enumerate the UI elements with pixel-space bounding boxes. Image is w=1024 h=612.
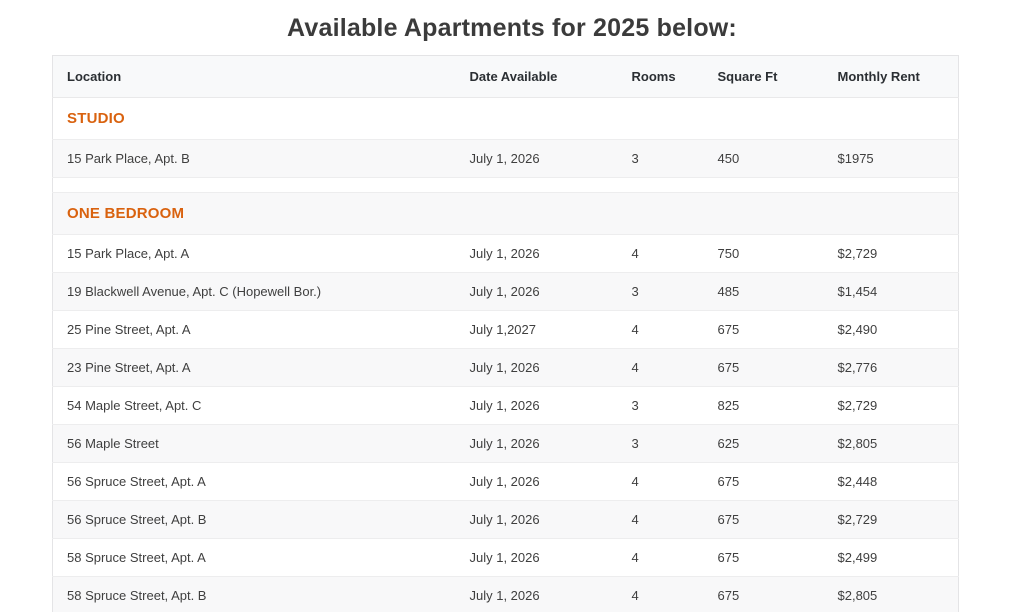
col-header-rooms: Rooms: [618, 56, 704, 98]
cell-square-ft: 485: [704, 273, 824, 311]
table-row: 58 Spruce Street, Apt. AJuly 1, 20264675…: [53, 539, 959, 577]
col-header-square-ft: Square Ft: [704, 56, 824, 98]
cell-monthly-rent: $2,729: [824, 501, 959, 539]
cell-rooms: 4: [618, 235, 704, 273]
cell-date-available: July 1, 2026: [456, 539, 618, 577]
cell-date-available: July 1, 2026: [456, 235, 618, 273]
cell-date-available: July 1, 2026: [456, 425, 618, 463]
cell-date-available: July 1, 2026: [456, 140, 618, 178]
cell-rooms: 4: [618, 501, 704, 539]
cell-date-available: July 1, 2026: [456, 577, 618, 612]
cell-location: 58 Spruce Street, Apt. B: [53, 577, 456, 612]
cell-date-available: July 1, 2026: [456, 273, 618, 311]
apartments-table-container: Location Date Available Rooms Square Ft …: [52, 55, 958, 612]
cell-rooms: 3: [618, 273, 704, 311]
cell-monthly-rent: $2,490: [824, 311, 959, 349]
section-title: ONE BEDROOM: [53, 193, 959, 235]
cell-date-available: July 1, 2026: [456, 463, 618, 501]
table-row: 56 Spruce Street, Apt. AJuly 1, 20264675…: [53, 463, 959, 501]
apartments-table-body: STUDIO15 Park Place, Apt. BJuly 1, 20263…: [53, 98, 959, 612]
section-header-row: ONE BEDROOM: [53, 193, 959, 235]
table-row: 23 Pine Street, Apt. AJuly 1, 20264675$2…: [53, 349, 959, 387]
spacer-cell: [53, 178, 959, 193]
cell-location: 23 Pine Street, Apt. A: [53, 349, 456, 387]
cell-date-available: July 1,2027: [456, 311, 618, 349]
cell-rooms: 4: [618, 349, 704, 387]
cell-square-ft: 825: [704, 387, 824, 425]
page-title: Available Apartments for 2025 below:: [0, 14, 1024, 43]
cell-monthly-rent: $2,499: [824, 539, 959, 577]
cell-monthly-rent: $1,454: [824, 273, 959, 311]
table-row: 58 Spruce Street, Apt. BJuly 1, 20264675…: [53, 577, 959, 612]
cell-square-ft: 625: [704, 425, 824, 463]
cell-monthly-rent: $2,805: [824, 577, 959, 612]
table-row: 15 Park Place, Apt. AJuly 1, 20264750$2,…: [53, 235, 959, 273]
cell-location: 56 Spruce Street, Apt. B: [53, 501, 456, 539]
cell-square-ft: 675: [704, 349, 824, 387]
cell-monthly-rent: $2,729: [824, 387, 959, 425]
cell-monthly-rent: $2,805: [824, 425, 959, 463]
cell-monthly-rent: $1975: [824, 140, 959, 178]
col-header-date-available: Date Available: [456, 56, 618, 98]
table-row: 19 Blackwell Avenue, Apt. C (Hopewell Bo…: [53, 273, 959, 311]
cell-square-ft: 675: [704, 311, 824, 349]
cell-location: 19 Blackwell Avenue, Apt. C (Hopewell Bo…: [53, 273, 456, 311]
table-row: 25 Pine Street, Apt. AJuly 1,20274675$2,…: [53, 311, 959, 349]
cell-square-ft: 675: [704, 577, 824, 612]
cell-location: 15 Park Place, Apt. B: [53, 140, 456, 178]
table-row: 56 Maple StreetJuly 1, 20263625$2,805: [53, 425, 959, 463]
cell-location: 56 Spruce Street, Apt. A: [53, 463, 456, 501]
cell-rooms: 3: [618, 425, 704, 463]
col-header-location: Location: [53, 56, 456, 98]
cell-location: 15 Park Place, Apt. A: [53, 235, 456, 273]
cell-square-ft: 750: [704, 235, 824, 273]
table-row: 15 Park Place, Apt. BJuly 1, 20263450$19…: [53, 140, 959, 178]
cell-date-available: July 1, 2026: [456, 387, 618, 425]
cell-rooms: 4: [618, 577, 704, 612]
col-header-monthly-rent: Monthly Rent: [824, 56, 959, 98]
table-header-row: Location Date Available Rooms Square Ft …: [53, 56, 959, 98]
cell-square-ft: 675: [704, 539, 824, 577]
cell-rooms: 4: [618, 539, 704, 577]
cell-monthly-rent: $2,729: [824, 235, 959, 273]
cell-rooms: 4: [618, 311, 704, 349]
cell-square-ft: 675: [704, 501, 824, 539]
cell-location: 58 Spruce Street, Apt. A: [53, 539, 456, 577]
cell-location: 54 Maple Street, Apt. C: [53, 387, 456, 425]
cell-square-ft: 450: [704, 140, 824, 178]
cell-square-ft: 675: [704, 463, 824, 501]
cell-date-available: July 1, 2026: [456, 349, 618, 387]
cell-location: 25 Pine Street, Apt. A: [53, 311, 456, 349]
table-row: 56 Spruce Street, Apt. BJuly 1, 20264675…: [53, 501, 959, 539]
section-title: STUDIO: [53, 98, 959, 140]
spacer-row: [53, 178, 959, 193]
cell-monthly-rent: $2,448: [824, 463, 959, 501]
table-row: 54 Maple Street, Apt. CJuly 1, 20263825$…: [53, 387, 959, 425]
cell-location: 56 Maple Street: [53, 425, 456, 463]
cell-rooms: 3: [618, 140, 704, 178]
section-header-row: STUDIO: [53, 98, 959, 140]
apartments-table: Location Date Available Rooms Square Ft …: [52, 55, 959, 612]
cell-rooms: 4: [618, 463, 704, 501]
cell-monthly-rent: $2,776: [824, 349, 959, 387]
cell-rooms: 3: [618, 387, 704, 425]
cell-date-available: July 1, 2026: [456, 501, 618, 539]
